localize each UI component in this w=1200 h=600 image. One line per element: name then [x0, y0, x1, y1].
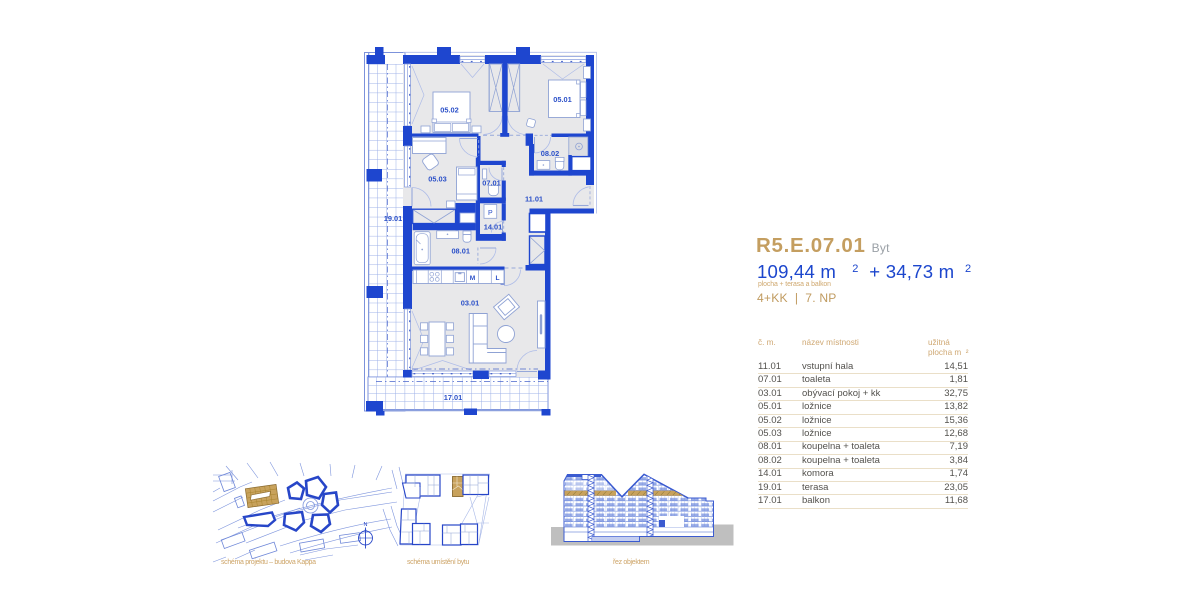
svg-text:M: M: [470, 275, 476, 282]
svg-text:07.01: 07.01: [482, 179, 501, 188]
svg-text:08.02: 08.02: [541, 149, 560, 158]
svg-text:05.01: 05.01: [553, 95, 572, 104]
svg-text:11.01: 11.01: [525, 194, 543, 203]
svg-text:05.02: 05.02: [440, 106, 459, 115]
svg-text:14.01: 14.01: [484, 223, 503, 232]
svg-text:03.01: 03.01: [461, 299, 480, 308]
svg-text:N: N: [364, 522, 368, 528]
svg-text:L: L: [495, 275, 499, 282]
svg-text:05.03: 05.03: [428, 175, 447, 184]
svg-text:P: P: [488, 210, 493, 217]
svg-text:17.01: 17.01: [444, 393, 463, 402]
svg-text:08.01: 08.01: [451, 247, 470, 256]
svg-text:19.01: 19.01: [384, 214, 403, 223]
